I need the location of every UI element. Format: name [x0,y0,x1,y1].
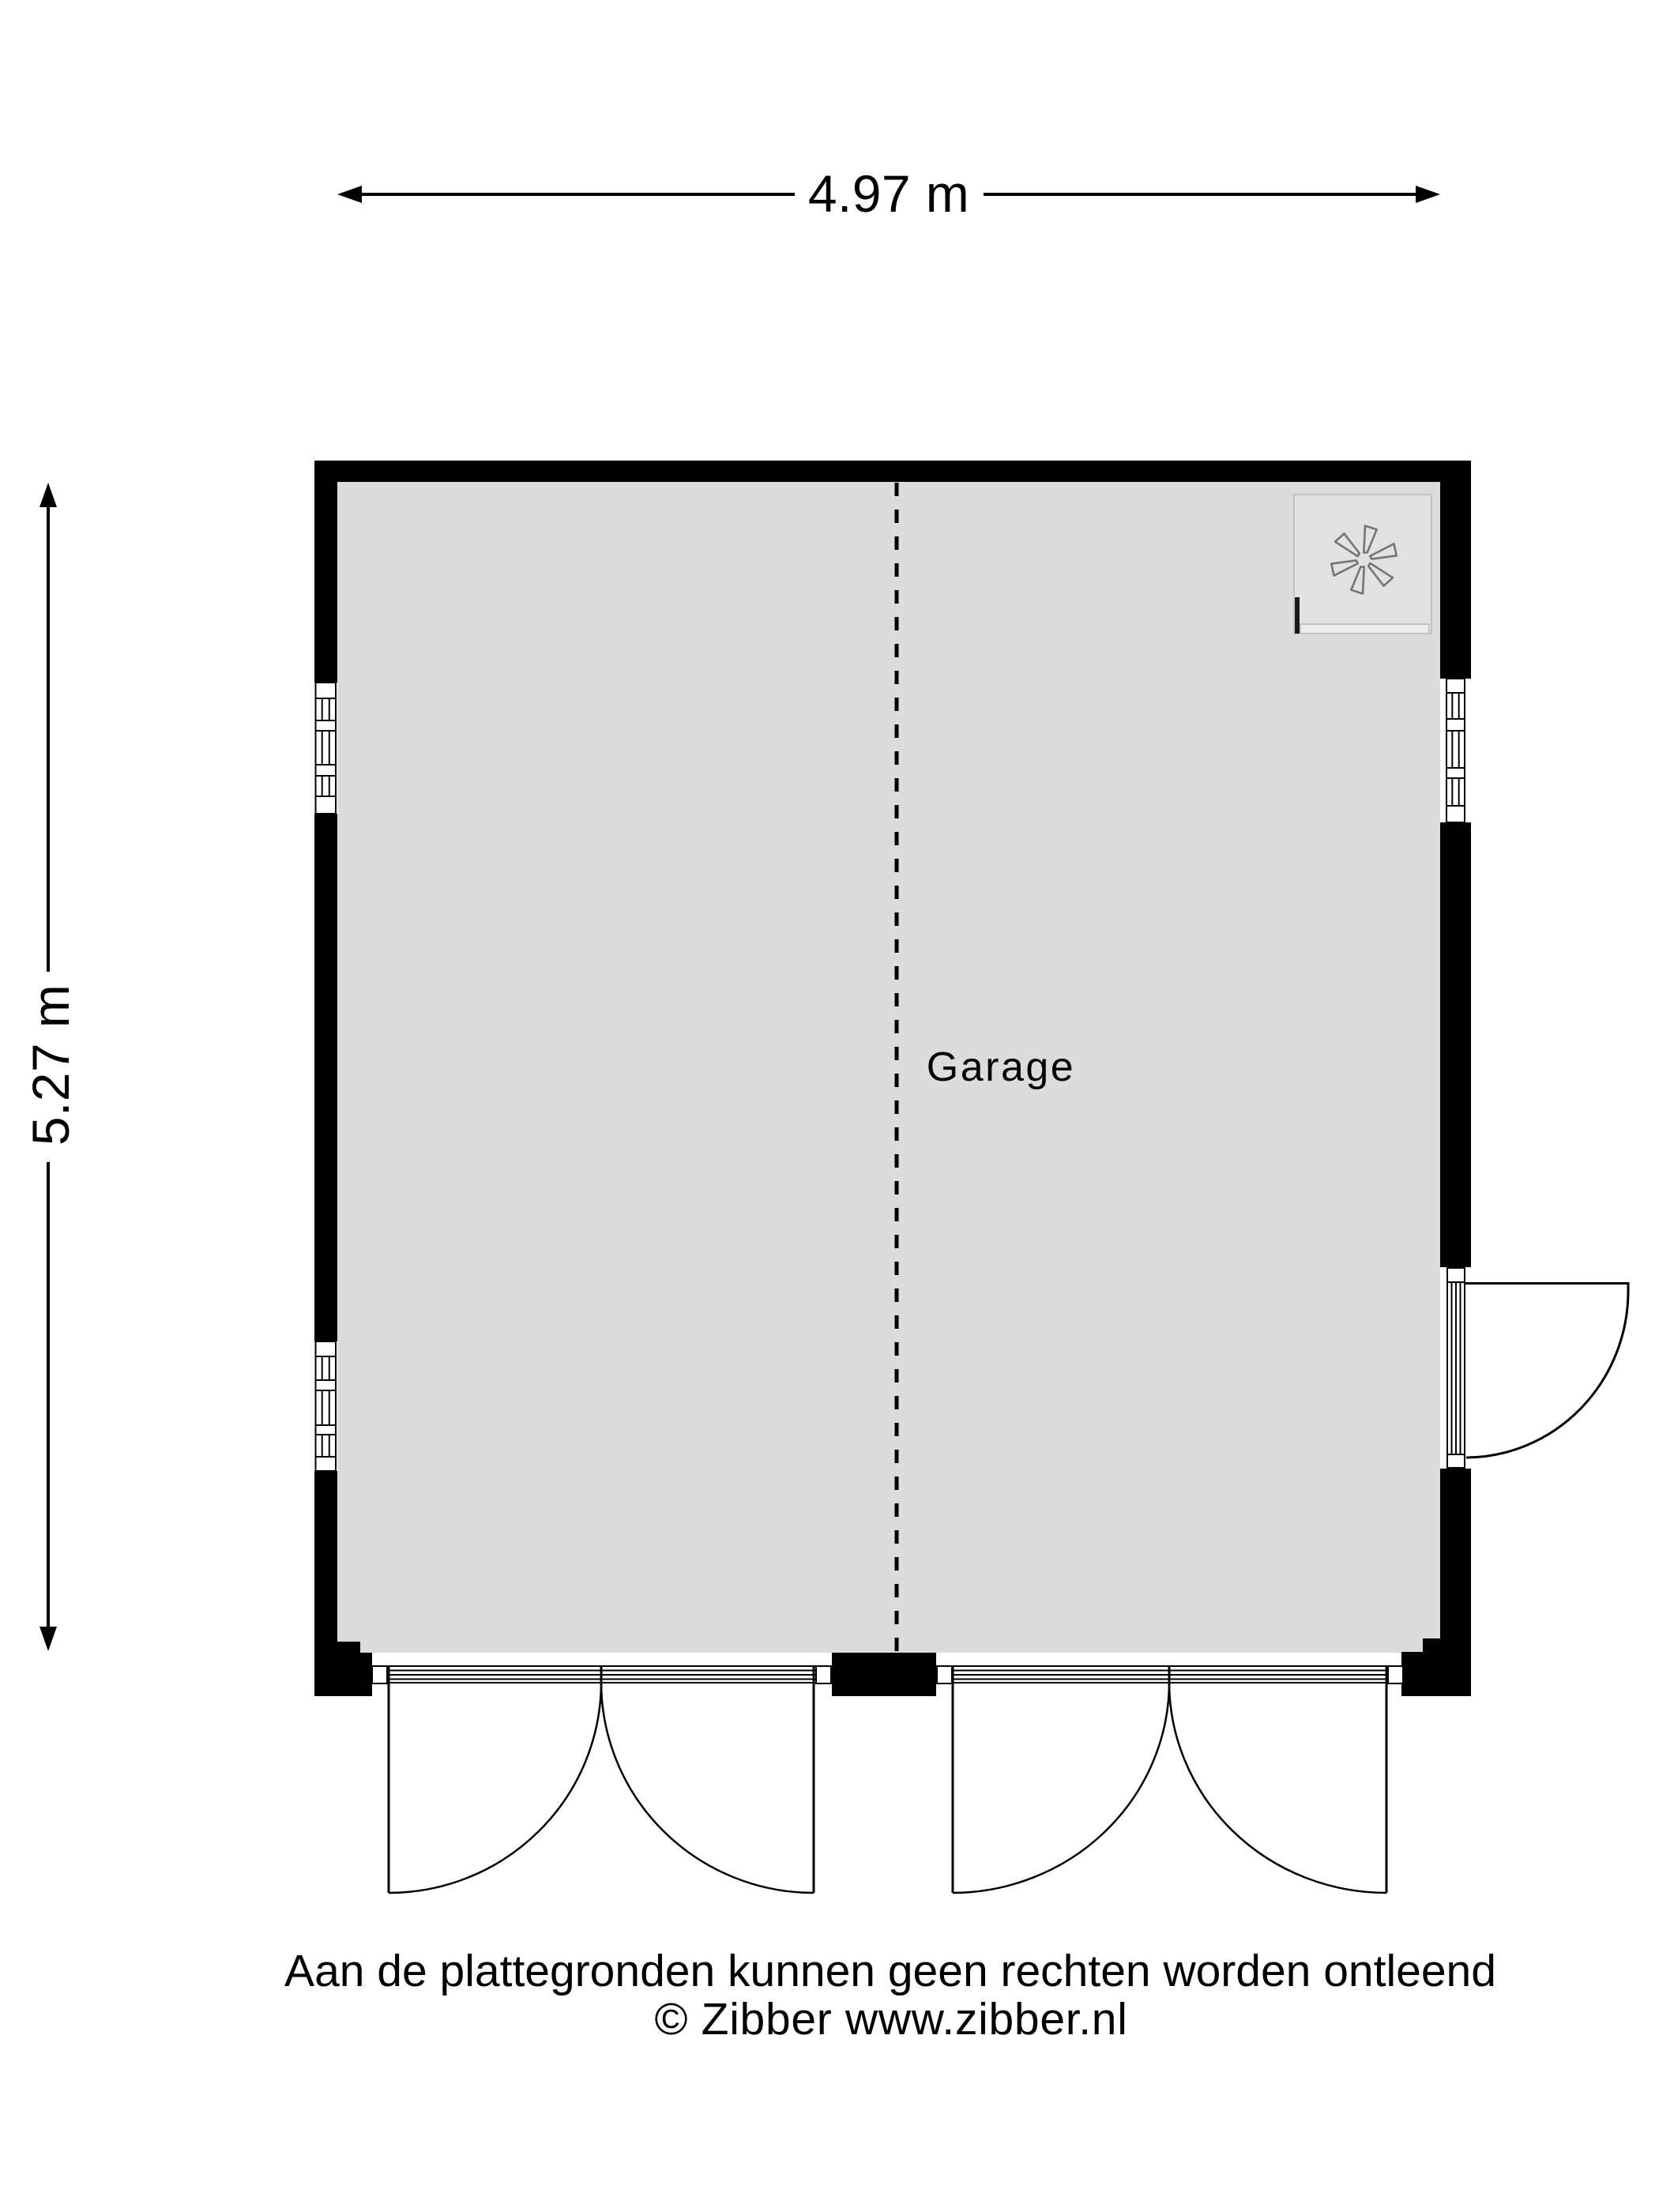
svg-text:Garage: Garage [927,1044,1075,1090]
svg-text:5.27 m: 5.27 m [21,984,80,1145]
svg-text:4.97 m: 4.97 m [808,164,969,223]
svg-text:© Zibber www.zibber.nl: © Zibber www.zibber.nl [654,1994,1127,2045]
svg-text:Aan de plattegronden kunnen ge: Aan de plattegronden kunnen geen rechten… [284,1946,1496,1996]
